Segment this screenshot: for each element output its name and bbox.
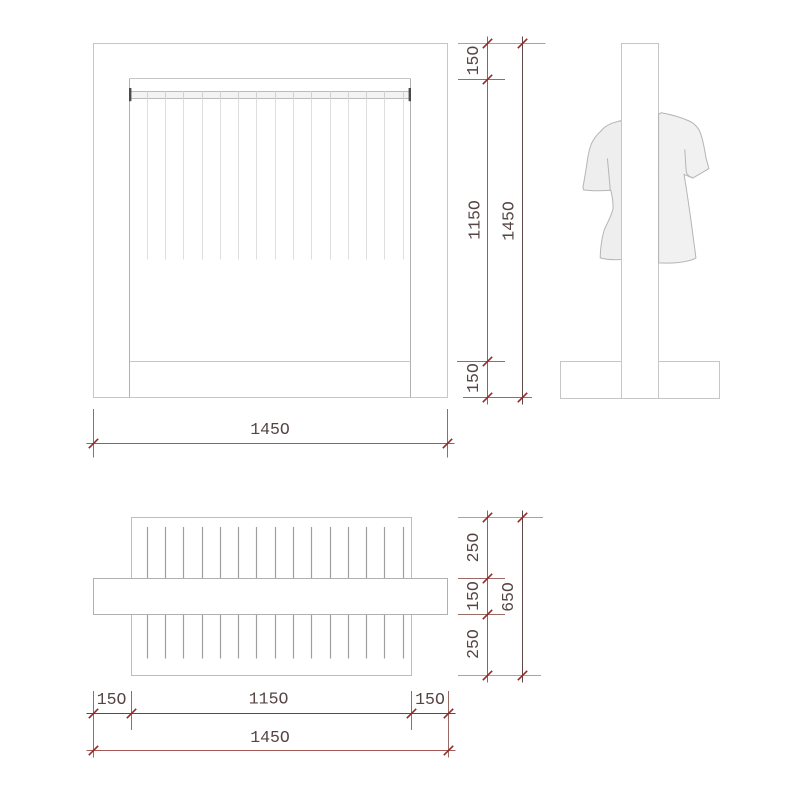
svg-text:145O: 145O: [499, 201, 518, 241]
svg-text:145O: 145O: [250, 420, 290, 439]
svg-text:15O: 15O: [97, 690, 127, 709]
svg-text:25O: 25O: [464, 629, 483, 659]
svg-text:15O: 15O: [464, 363, 483, 393]
svg-text:25O: 25O: [464, 533, 483, 563]
svg-text:15O: 15O: [415, 690, 445, 709]
svg-text:115O: 115O: [249, 690, 289, 709]
svg-text:115O: 115O: [465, 200, 484, 240]
svg-text:145O: 145O: [250, 728, 290, 747]
svg-text:65O: 65O: [499, 582, 518, 612]
svg-text:15O: 15O: [464, 46, 483, 76]
svg-text:15O: 15O: [464, 581, 483, 611]
